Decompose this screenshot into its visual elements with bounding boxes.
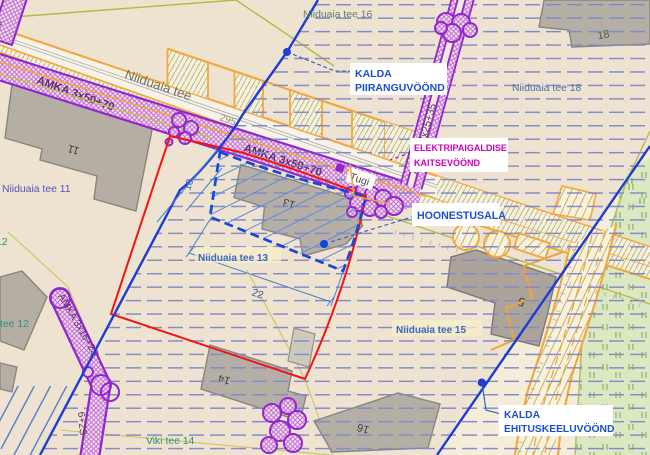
svg-text:Niiduaia tee 16: Niiduaia tee 16	[303, 10, 373, 21]
svg-text:6+2S: 6+2S	[75, 411, 88, 436]
svg-text:Viki tee 14: Viki tee 14	[146, 436, 195, 447]
svg-text:Niiduaia tee 11: Niiduaia tee 11	[2, 184, 71, 195]
svg-text:ELEKTRIPAIGALDISE: ELEKTRIPAIGALDISE	[414, 143, 507, 153]
svg-text:HOONESTUSALA: HOONESTUSALA	[417, 210, 506, 222]
svg-text:KALDA: KALDA	[355, 68, 392, 80]
svg-text:tee 12: tee 12	[0, 319, 29, 330]
svg-text:12: 12	[0, 237, 8, 248]
svg-text:PIIRANGUVÖÖND: PIIRANGUVÖÖND	[355, 81, 445, 94]
svg-text:Niiduaia tee 18: Niiduaia tee 18	[512, 83, 582, 94]
svg-text:KAITSEVÖÖND: KAITSEVÖÖND	[414, 158, 481, 168]
svg-text:EHITUSKEELUVÖÖND: EHITUSKEELUVÖÖND	[504, 422, 614, 435]
svg-text:KALDA: KALDA	[504, 410, 541, 421]
svg-text:Niiduaia tee 15: Niiduaia tee 15	[396, 325, 466, 336]
svg-text:Niiduaia tee 13: Niiduaia tee 13	[198, 253, 268, 264]
